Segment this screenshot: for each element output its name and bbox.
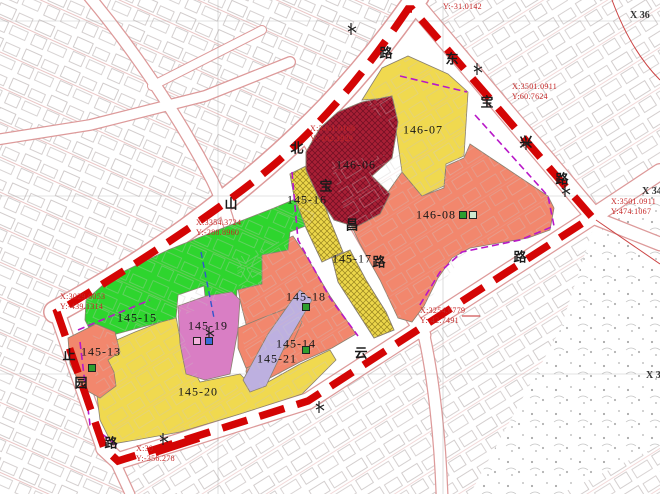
map-graphics xyxy=(0,0,660,494)
planning-map: 145-15145-13145-19145-20145-14145-21145-… xyxy=(0,0,660,494)
